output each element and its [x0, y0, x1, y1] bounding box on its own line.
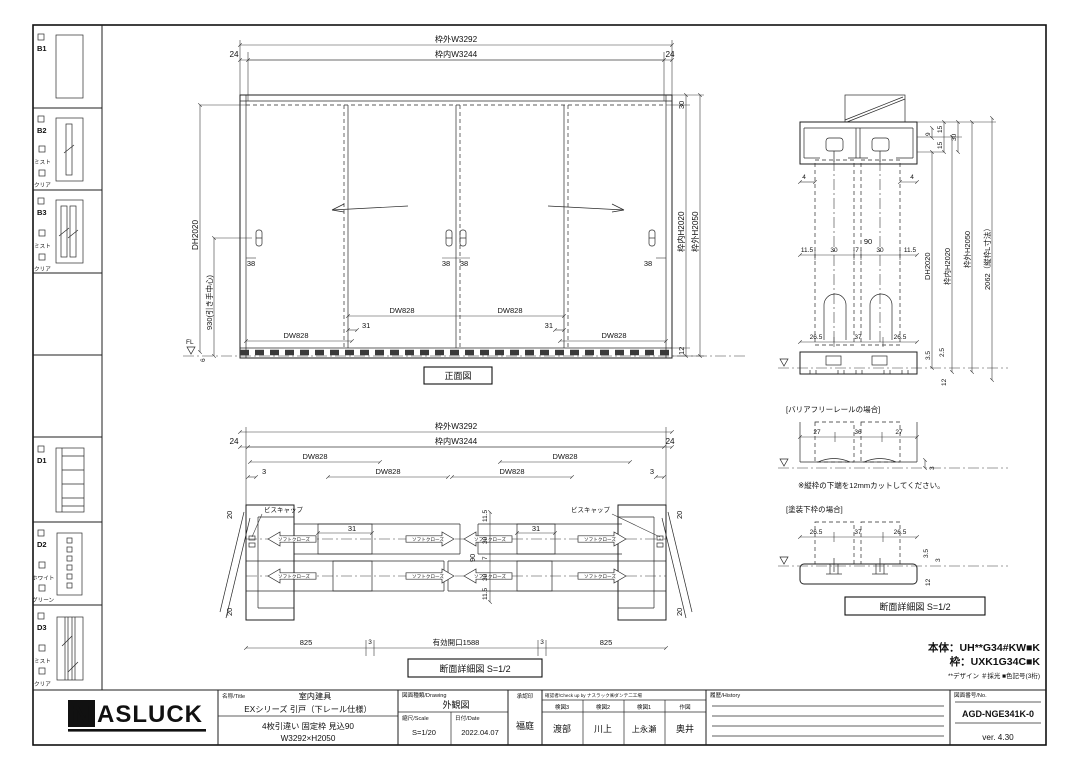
dim-11-5: 11.5	[482, 509, 489, 522]
dim-handle-offset: 38	[460, 259, 468, 268]
svg-text:ソフトクローズ: ソフトクローズ	[412, 573, 444, 580]
drawing-no-label: 図面番号/No.	[954, 692, 987, 699]
dim-825: 825	[300, 638, 313, 647]
dim-frame-inner-width: 枠内W3244	[435, 49, 478, 59]
style-code: D3	[37, 623, 47, 632]
sidebar-item-d2[interactable]: D2 ホワイト グリーン	[32, 530, 82, 604]
dim-20: 20	[675, 608, 684, 616]
fl-marker-icon	[187, 347, 195, 354]
dim-27: 27	[895, 429, 903, 436]
dim-6: 6	[200, 358, 207, 362]
dim-30: 30	[482, 536, 489, 544]
dim-sill-12: 12	[677, 347, 686, 355]
dim-handle-offset: 38	[247, 259, 255, 268]
date-value: 2022.04.07	[461, 728, 499, 737]
option-label: クリア	[34, 681, 51, 688]
svg-text:ASLUCK: ASLUCK	[97, 701, 203, 728]
checkbox-mist[interactable]	[39, 230, 45, 236]
dim-37: 37	[854, 529, 862, 536]
detail-title: [塗装下枠の場合]	[786, 504, 843, 514]
dim-7: 7	[855, 247, 859, 254]
dim-door-width: DW828	[302, 452, 327, 461]
dim-frame-outer-width: 枠外W3292	[435, 421, 478, 431]
checkbox[interactable]	[38, 34, 44, 40]
dim-door-width: DW828	[499, 467, 524, 476]
dim-20: 20	[675, 511, 684, 519]
door-style-icon	[56, 448, 84, 512]
dim-door-width: DW828	[375, 467, 400, 476]
product-spec: 4枚引違い 固定枠 見込90	[262, 721, 354, 731]
option-label: ミスト	[34, 658, 51, 665]
dim-90: 90	[864, 237, 872, 246]
dim-24-right: 24	[665, 50, 675, 59]
checkbox-clear[interactable]	[39, 668, 45, 674]
sidebar-item-b3[interactable]: B3 ミスト クリア	[34, 198, 83, 273]
door-style-icon	[56, 35, 83, 98]
scale-value: S=1/20	[412, 728, 436, 737]
dim-3: 3	[540, 639, 544, 646]
dim-handle-offset: 38	[644, 259, 652, 268]
dim-door-height: DH2020	[191, 220, 200, 250]
dim-15: 15	[937, 125, 944, 133]
cut-note: ※縦枠の下端を12mmカットしてください。	[798, 480, 945, 490]
dim-3-5: 3.5	[925, 351, 932, 360]
svg-text:ソフトクローズ: ソフトクローズ	[584, 573, 616, 580]
product-category: 室内建具	[299, 691, 332, 701]
dim-handle-height: 930(引き手中心)	[204, 274, 214, 330]
checker-name: 川上	[594, 724, 612, 734]
detail-title: [バリアフリーレールの場合]	[786, 404, 880, 414]
plan-section-view: 枠外W3292 24 枠内W3244 24 DW828 DW828 DW828 …	[220, 421, 692, 677]
option-label: グリーン	[32, 596, 55, 604]
dim-24-left: 24	[229, 437, 239, 446]
checker-name: 渡部	[553, 723, 571, 734]
product-codes: 本体：UH**G34#KW■K 枠：UXK1G34C■K **デザイン ＃採光 …	[928, 641, 1040, 680]
checkbox[interactable]	[38, 116, 44, 122]
checkbox-clear[interactable]	[39, 170, 45, 176]
dim-3: 3	[650, 467, 654, 476]
dim-head-30: 30	[677, 101, 686, 109]
style-code: B1	[37, 44, 47, 53]
dim-27: 27	[813, 429, 821, 436]
dim-door-width: DW828	[497, 306, 522, 315]
dim-inner-height: 枠内H2020	[942, 248, 952, 285]
barrier-free-detail: [バリアフリーレールの場合] 27 36 27 3 ※縦枠の下端を12mmカット…	[778, 404, 1008, 490]
sidebar-door-styles: B1 B2 ミスト クリア B3 ミスト クリア D1	[32, 25, 102, 690]
product-size: W3292×H2050	[281, 734, 336, 743]
dim-9: 9	[925, 132, 932, 136]
dim-4: 4	[910, 174, 914, 181]
nasluck-logo: N ASLUCK	[68, 700, 206, 732]
dim-outer-height: 枠外H2050	[690, 211, 700, 252]
option-label: ミスト	[34, 159, 51, 166]
dim-outer-height: 枠外H2050	[962, 231, 972, 268]
drawing-number: AGD-NGE341K-0	[962, 709, 1034, 719]
title-block: N ASLUCK 名称/Title 室内建具 EXシリーズ 引戸（下レール仕様）…	[33, 690, 1046, 745]
frame-code: 枠：UXK1G34C■K	[950, 655, 1041, 668]
svg-text:ソフトクローズ: ソフトクローズ	[412, 536, 444, 543]
checkbox-clear[interactable]	[39, 254, 45, 260]
dim-26-5: 26.5	[810, 529, 823, 536]
checkbox-mist[interactable]	[39, 645, 45, 651]
dim-24-left: 24	[229, 50, 239, 59]
checkbox[interactable]	[38, 530, 44, 536]
dim-30: 30	[876, 247, 884, 254]
screw-cap-label: ビスキャップ	[264, 505, 304, 514]
dim-3: 3	[935, 558, 942, 562]
soft-close-arrows	[268, 532, 626, 583]
dim-3: 3	[262, 467, 266, 476]
sheet-border	[33, 25, 1046, 745]
door-style-icon	[56, 200, 83, 263]
dim-24-right: 24	[665, 437, 675, 446]
drawing-sheet: B1 B2 ミスト クリア B3 ミスト クリア D1	[0, 0, 1080, 764]
checkbox-mist[interactable]	[39, 146, 45, 152]
dim-3: 3	[929, 466, 936, 470]
dim-door-width: DW828	[552, 452, 577, 461]
front-view: 枠外W3292 24 枠内W3244 24 30 枠内H2020 12 枠外H2…	[183, 34, 745, 384]
dim-825: 825	[600, 638, 613, 647]
dim-overlap-31: 31	[545, 321, 553, 330]
checker-name: 上永瀬	[632, 724, 657, 734]
dim-2-5: 2.5	[939, 348, 946, 357]
checkers-header: 確認者/Check up by ナスラック㈱ダンテ二工場	[545, 692, 642, 699]
history-label: 履歴/History	[710, 692, 740, 699]
dim-26-5: 26.5	[894, 334, 907, 341]
code-legend: **デザイン ＃採光 ■色記号(3桁)	[948, 671, 1040, 680]
dim-20: 20	[225, 608, 234, 616]
version: ver. 4.30	[982, 733, 1014, 742]
scale-label: 縮尺/Scale	[402, 714, 429, 722]
dim-door-width: DW828	[601, 331, 626, 340]
dim-11-5: 11.5	[482, 587, 489, 600]
sidebar-item-d3[interactable]: D3 ミスト クリア	[34, 613, 83, 688]
svg-text:N: N	[72, 701, 89, 728]
option-label: ホワイト	[32, 575, 54, 582]
dim-12: 12	[941, 378, 948, 386]
dim-12: 12	[925, 578, 932, 586]
approval-name: 福庭	[516, 720, 534, 731]
checkbox[interactable]	[38, 198, 44, 204]
checkbox-white[interactable]	[39, 562, 45, 568]
sidebar-item-b1[interactable]: B1	[37, 34, 83, 98]
dim-frame-outer-width: 枠外W3292	[435, 34, 478, 44]
product-series: EXシリーズ 引戸（下レール仕様）	[244, 704, 371, 714]
dim-11-5: 11.5	[904, 247, 917, 254]
dim-4: 4	[802, 174, 806, 181]
drawing-type-label: 図面種類/Drawing	[402, 691, 446, 699]
front-view-caption: 正面図	[444, 371, 471, 381]
dim-overlap-31: 31	[532, 524, 540, 533]
check-role: 検図3	[555, 703, 569, 711]
dim-30: 30	[482, 573, 489, 581]
checker-name: 奥井	[676, 723, 694, 734]
dim-inner-height: 枠内H2020	[676, 211, 686, 252]
door-style-icon	[57, 617, 83, 680]
dim-door-height: DH2020	[923, 252, 932, 280]
dim-door-width: DW828	[283, 331, 308, 340]
style-code: B3	[37, 208, 47, 217]
svg-text:ソフトクローズ: ソフトクローズ	[278, 573, 310, 580]
option-label: ミスト	[34, 243, 51, 250]
dim-3: 3	[368, 639, 372, 646]
sidebar-item-d1[interactable]: D1	[37, 446, 84, 512]
fl-marker-icon	[780, 459, 788, 466]
door-style-icon	[57, 533, 82, 595]
approval-label: 承認印	[517, 692, 534, 700]
plan-section-caption: 断面詳細図 S=1/2	[439, 663, 510, 674]
dim-26-5: 26.5	[894, 529, 907, 536]
detail-section-caption: 断面詳細図 S=1/2	[879, 601, 950, 612]
dim-15: 15	[937, 141, 944, 149]
dim-90: 90	[468, 554, 477, 562]
svg-text:ソフトクローズ: ソフトクローズ	[278, 536, 310, 543]
dim-overlap-31: 31	[362, 321, 370, 330]
checkbox-green[interactable]	[39, 585, 45, 591]
body-code: 本体：UH**G34#KW■K	[928, 641, 1040, 654]
dim-effective-opening: 有効開口1588	[433, 637, 480, 647]
dim-37: 37	[854, 334, 862, 341]
dim-36: 36	[854, 429, 862, 436]
style-code: B2	[37, 126, 47, 135]
vertical-section-view: 4 4 11.5 30 7 30 11.5 90 26.5 37 26.5 9 …	[778, 95, 1008, 386]
dim-7: 7	[482, 556, 489, 560]
svg-text:ソフトクローズ: ソフトクローズ	[584, 536, 616, 543]
fl-marker-icon	[780, 359, 788, 366]
dim-26-5: 26.5	[810, 334, 823, 341]
check-role: 作図	[679, 703, 691, 711]
dim-2062: 2062（縦枠L寸法）	[982, 224, 992, 290]
checkbox[interactable]	[38, 446, 44, 452]
dim-handle-offset: 38	[442, 259, 450, 268]
slide-direction-arrow	[332, 204, 624, 212]
date-label: 日付/Date	[455, 714, 480, 722]
check-role: 検図2	[596, 703, 610, 711]
screw-cap-label: ビスキャップ	[571, 505, 611, 514]
door-style-icon	[56, 118, 83, 181]
door-panels-plan	[246, 524, 666, 591]
painted-sill-detail: [塗装下枠の場合] 26.5 37 26.5 3.5 3 12 断面詳細図 S=…	[778, 504, 1008, 615]
sidebar-item-b2[interactable]: B2 ミスト クリア	[34, 116, 83, 189]
dim-door-width: DW828	[389, 306, 414, 315]
dim-overlap-31: 31	[348, 524, 356, 533]
left-jamb-profile	[220, 505, 294, 620]
dim-20: 20	[225, 511, 234, 519]
check-role: 検図1	[637, 703, 651, 711]
dim-frame-inner-width: 枠内W3244	[435, 436, 478, 446]
door-handle-icon	[256, 230, 655, 246]
option-label: クリア	[34, 182, 51, 189]
option-label: クリア	[34, 266, 51, 273]
drawing-type: 外観図	[442, 699, 469, 710]
checkbox[interactable]	[38, 613, 44, 619]
name-label: 名称/Title	[222, 692, 245, 700]
dim-11-5: 11.5	[801, 247, 814, 254]
style-code: D1	[37, 456, 47, 465]
dim-3-5: 3.5	[923, 549, 930, 558]
style-code: D2	[37, 540, 47, 549]
fl-marker-icon	[780, 557, 788, 564]
fl-label: FL	[186, 339, 194, 346]
dim-30: 30	[830, 247, 838, 254]
